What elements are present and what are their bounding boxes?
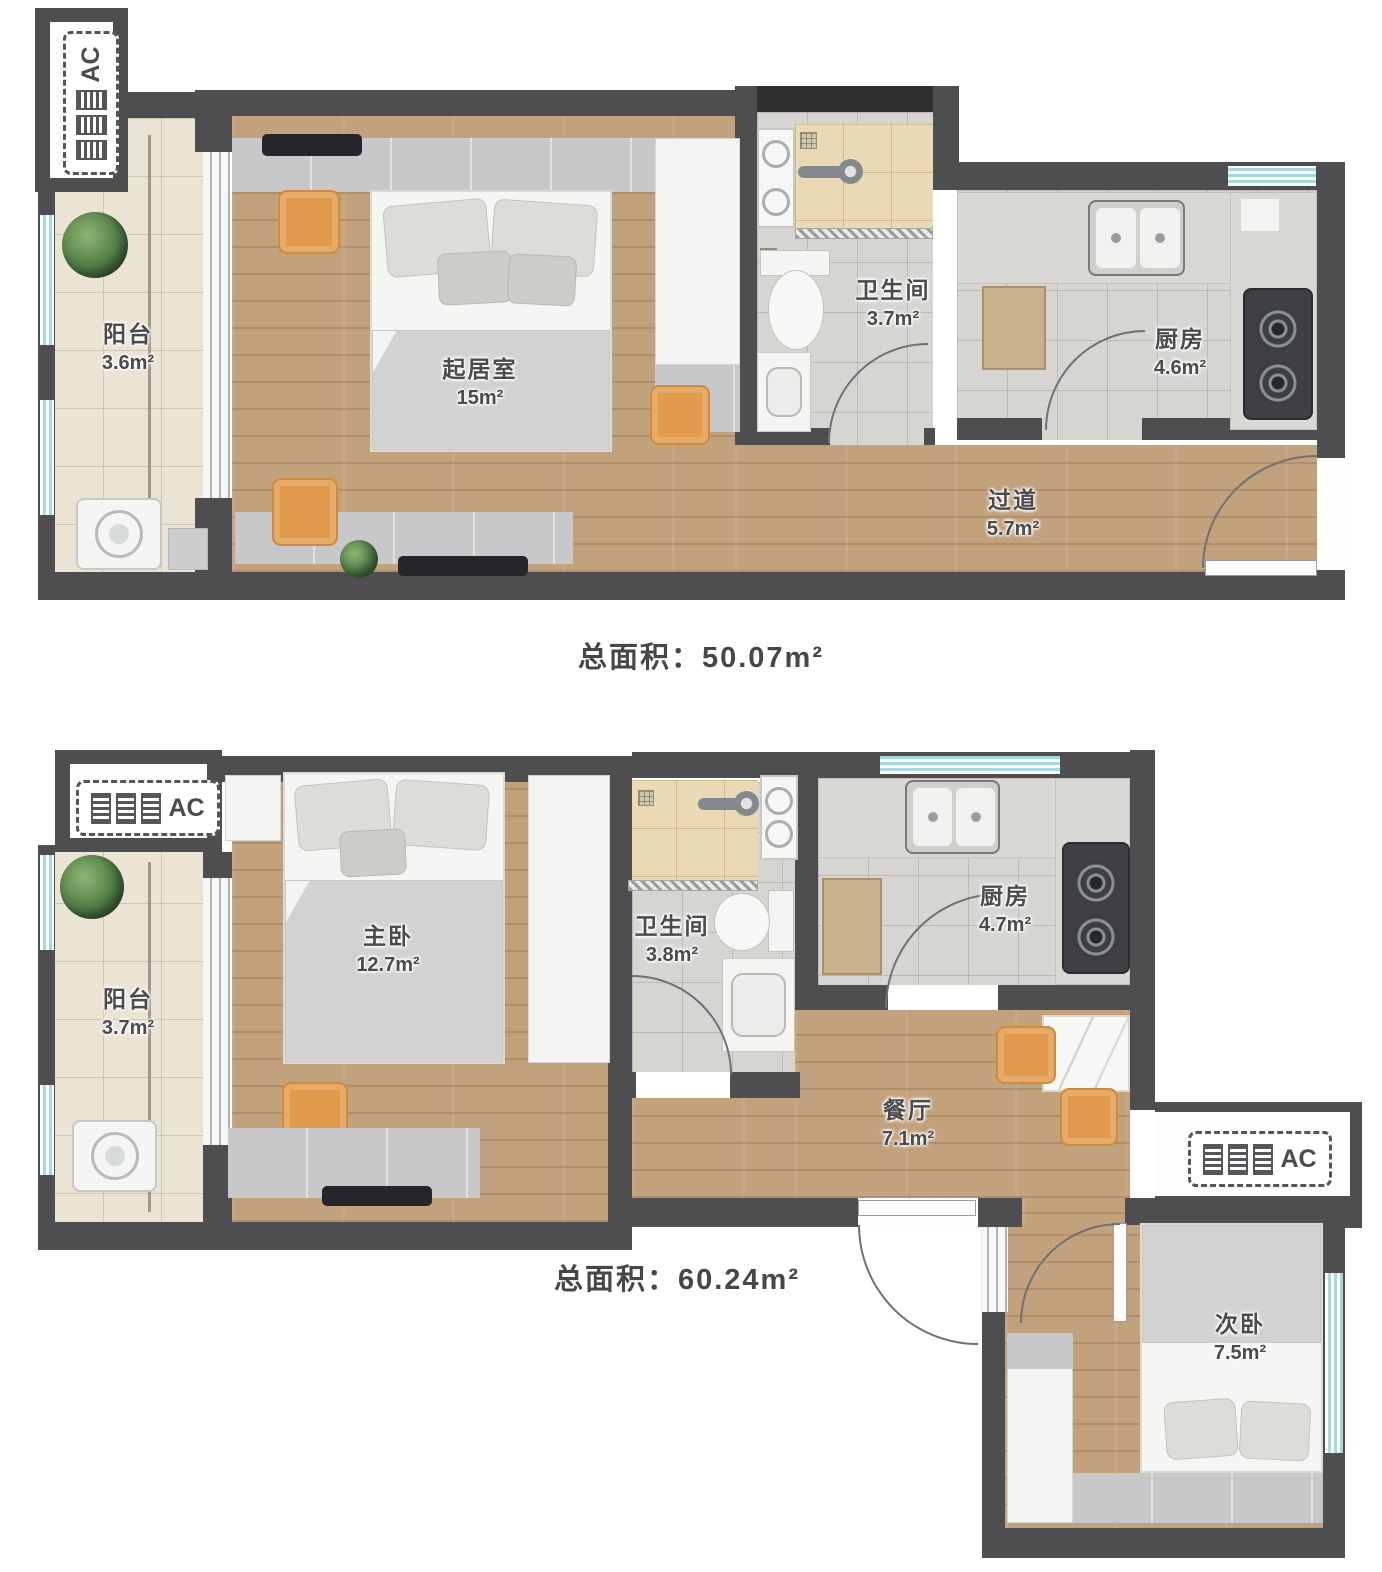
floor-plan-b: AC AC bbox=[0, 0, 1382, 1572]
pillow bbox=[339, 828, 407, 877]
room-label-kitchen: 厨房 4.7m² bbox=[935, 882, 1075, 938]
total-area-label-b: 总面积：60.24m² bbox=[467, 1256, 887, 1298]
washing-machine bbox=[72, 1120, 157, 1192]
wall bbox=[818, 985, 888, 1010]
room-label-balcony: 阳台 3.7m² bbox=[68, 985, 188, 1041]
burner-icon bbox=[1073, 860, 1119, 906]
window bbox=[1325, 1273, 1343, 1453]
door-pocket bbox=[980, 1227, 1008, 1312]
shower-glass bbox=[628, 880, 758, 891]
wall bbox=[982, 1528, 1345, 1558]
room-label-dining: 餐厅 7.1m² bbox=[838, 1096, 978, 1152]
wall bbox=[608, 1198, 858, 1227]
refrigerator bbox=[822, 878, 882, 975]
ac-grille-icon bbox=[1253, 1144, 1273, 1175]
sink-basin bbox=[956, 788, 995, 846]
room-label-bathroom: 卫生间 3.8m² bbox=[602, 912, 742, 968]
wall bbox=[982, 1312, 1005, 1558]
dining-chair bbox=[996, 1026, 1056, 1084]
potted-plant bbox=[60, 855, 124, 919]
pillow bbox=[392, 779, 490, 851]
double-sink bbox=[905, 780, 1000, 854]
ac-grille-icon bbox=[141, 793, 161, 824]
ac-unit: AC bbox=[1188, 1131, 1332, 1187]
sliding-door-track bbox=[203, 878, 230, 1145]
pillow bbox=[1163, 1398, 1239, 1461]
room-label-secondary: 次卧 7.5m² bbox=[1170, 1310, 1310, 1366]
wardrobe-top bbox=[1007, 1333, 1073, 1369]
wall bbox=[195, 1222, 620, 1250]
wall bbox=[795, 756, 818, 1010]
bench bbox=[1073, 1473, 1323, 1523]
window bbox=[880, 756, 1060, 774]
ac-grille-icon bbox=[91, 793, 111, 824]
ac-grille-icon bbox=[1203, 1144, 1223, 1175]
toilet-tank bbox=[768, 890, 794, 952]
window bbox=[40, 855, 54, 950]
wall bbox=[203, 852, 232, 878]
wall bbox=[608, 756, 632, 1250]
dining-floor bbox=[632, 1098, 795, 1198]
floor-plan-canvas: AC bbox=[0, 0, 1382, 1572]
ac-grille-icon bbox=[116, 793, 136, 824]
floor-drain bbox=[638, 790, 654, 806]
ac-label: AC bbox=[168, 796, 204, 821]
door-leaf bbox=[858, 1200, 976, 1216]
pillow bbox=[1239, 1400, 1312, 1462]
dining-chair bbox=[1060, 1088, 1118, 1146]
nightstand bbox=[225, 775, 281, 841]
ac-label: AC bbox=[1280, 1147, 1316, 1172]
window bbox=[40, 1085, 54, 1175]
sink-basin bbox=[913, 788, 952, 846]
wall bbox=[730, 1072, 800, 1098]
wardrobe bbox=[528, 775, 610, 1063]
wall bbox=[1155, 1102, 1360, 1112]
vanity-sink bbox=[722, 958, 795, 1052]
wall bbox=[998, 985, 1135, 1010]
wall bbox=[38, 1222, 218, 1250]
wall bbox=[608, 1072, 636, 1098]
ac-grille-icon bbox=[1228, 1144, 1248, 1175]
shower-fixture bbox=[698, 798, 746, 810]
wall bbox=[1130, 750, 1155, 1110]
room-label-master: 主卧 12.7m² bbox=[308, 922, 468, 978]
laundry-stack bbox=[760, 775, 798, 860]
wall bbox=[1350, 1102, 1362, 1198]
laptop bbox=[322, 1186, 432, 1206]
ac-unit: AC bbox=[76, 780, 220, 836]
burner-icon bbox=[1073, 914, 1119, 960]
